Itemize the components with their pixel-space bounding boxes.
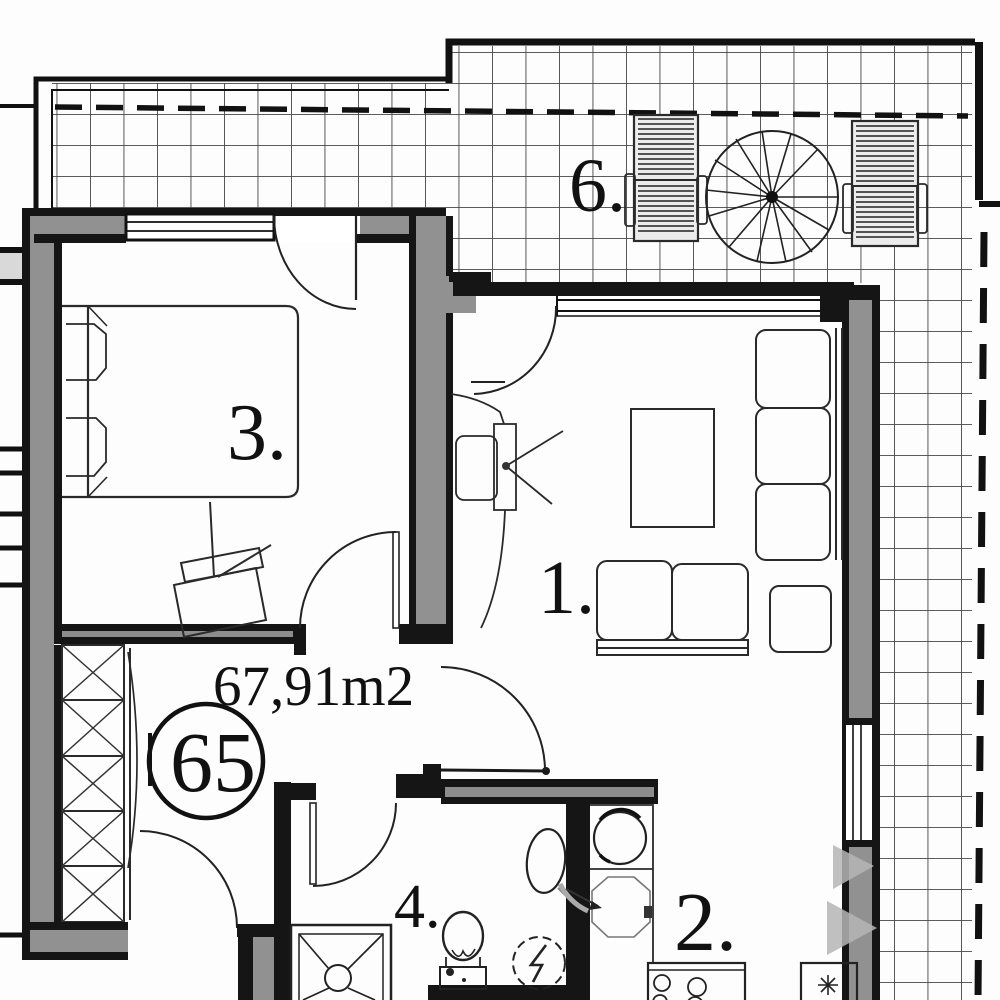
svg-text:67,91m2: 67,91m2 [213,655,414,718]
svg-text:1.: 1. [538,546,595,630]
svg-text:2.: 2. [674,876,737,969]
svg-text:6.: 6. [569,144,626,228]
svg-text:65: 65 [170,714,256,810]
svg-text:4.: 4. [394,873,441,941]
svg-text:3.: 3. [227,389,287,477]
